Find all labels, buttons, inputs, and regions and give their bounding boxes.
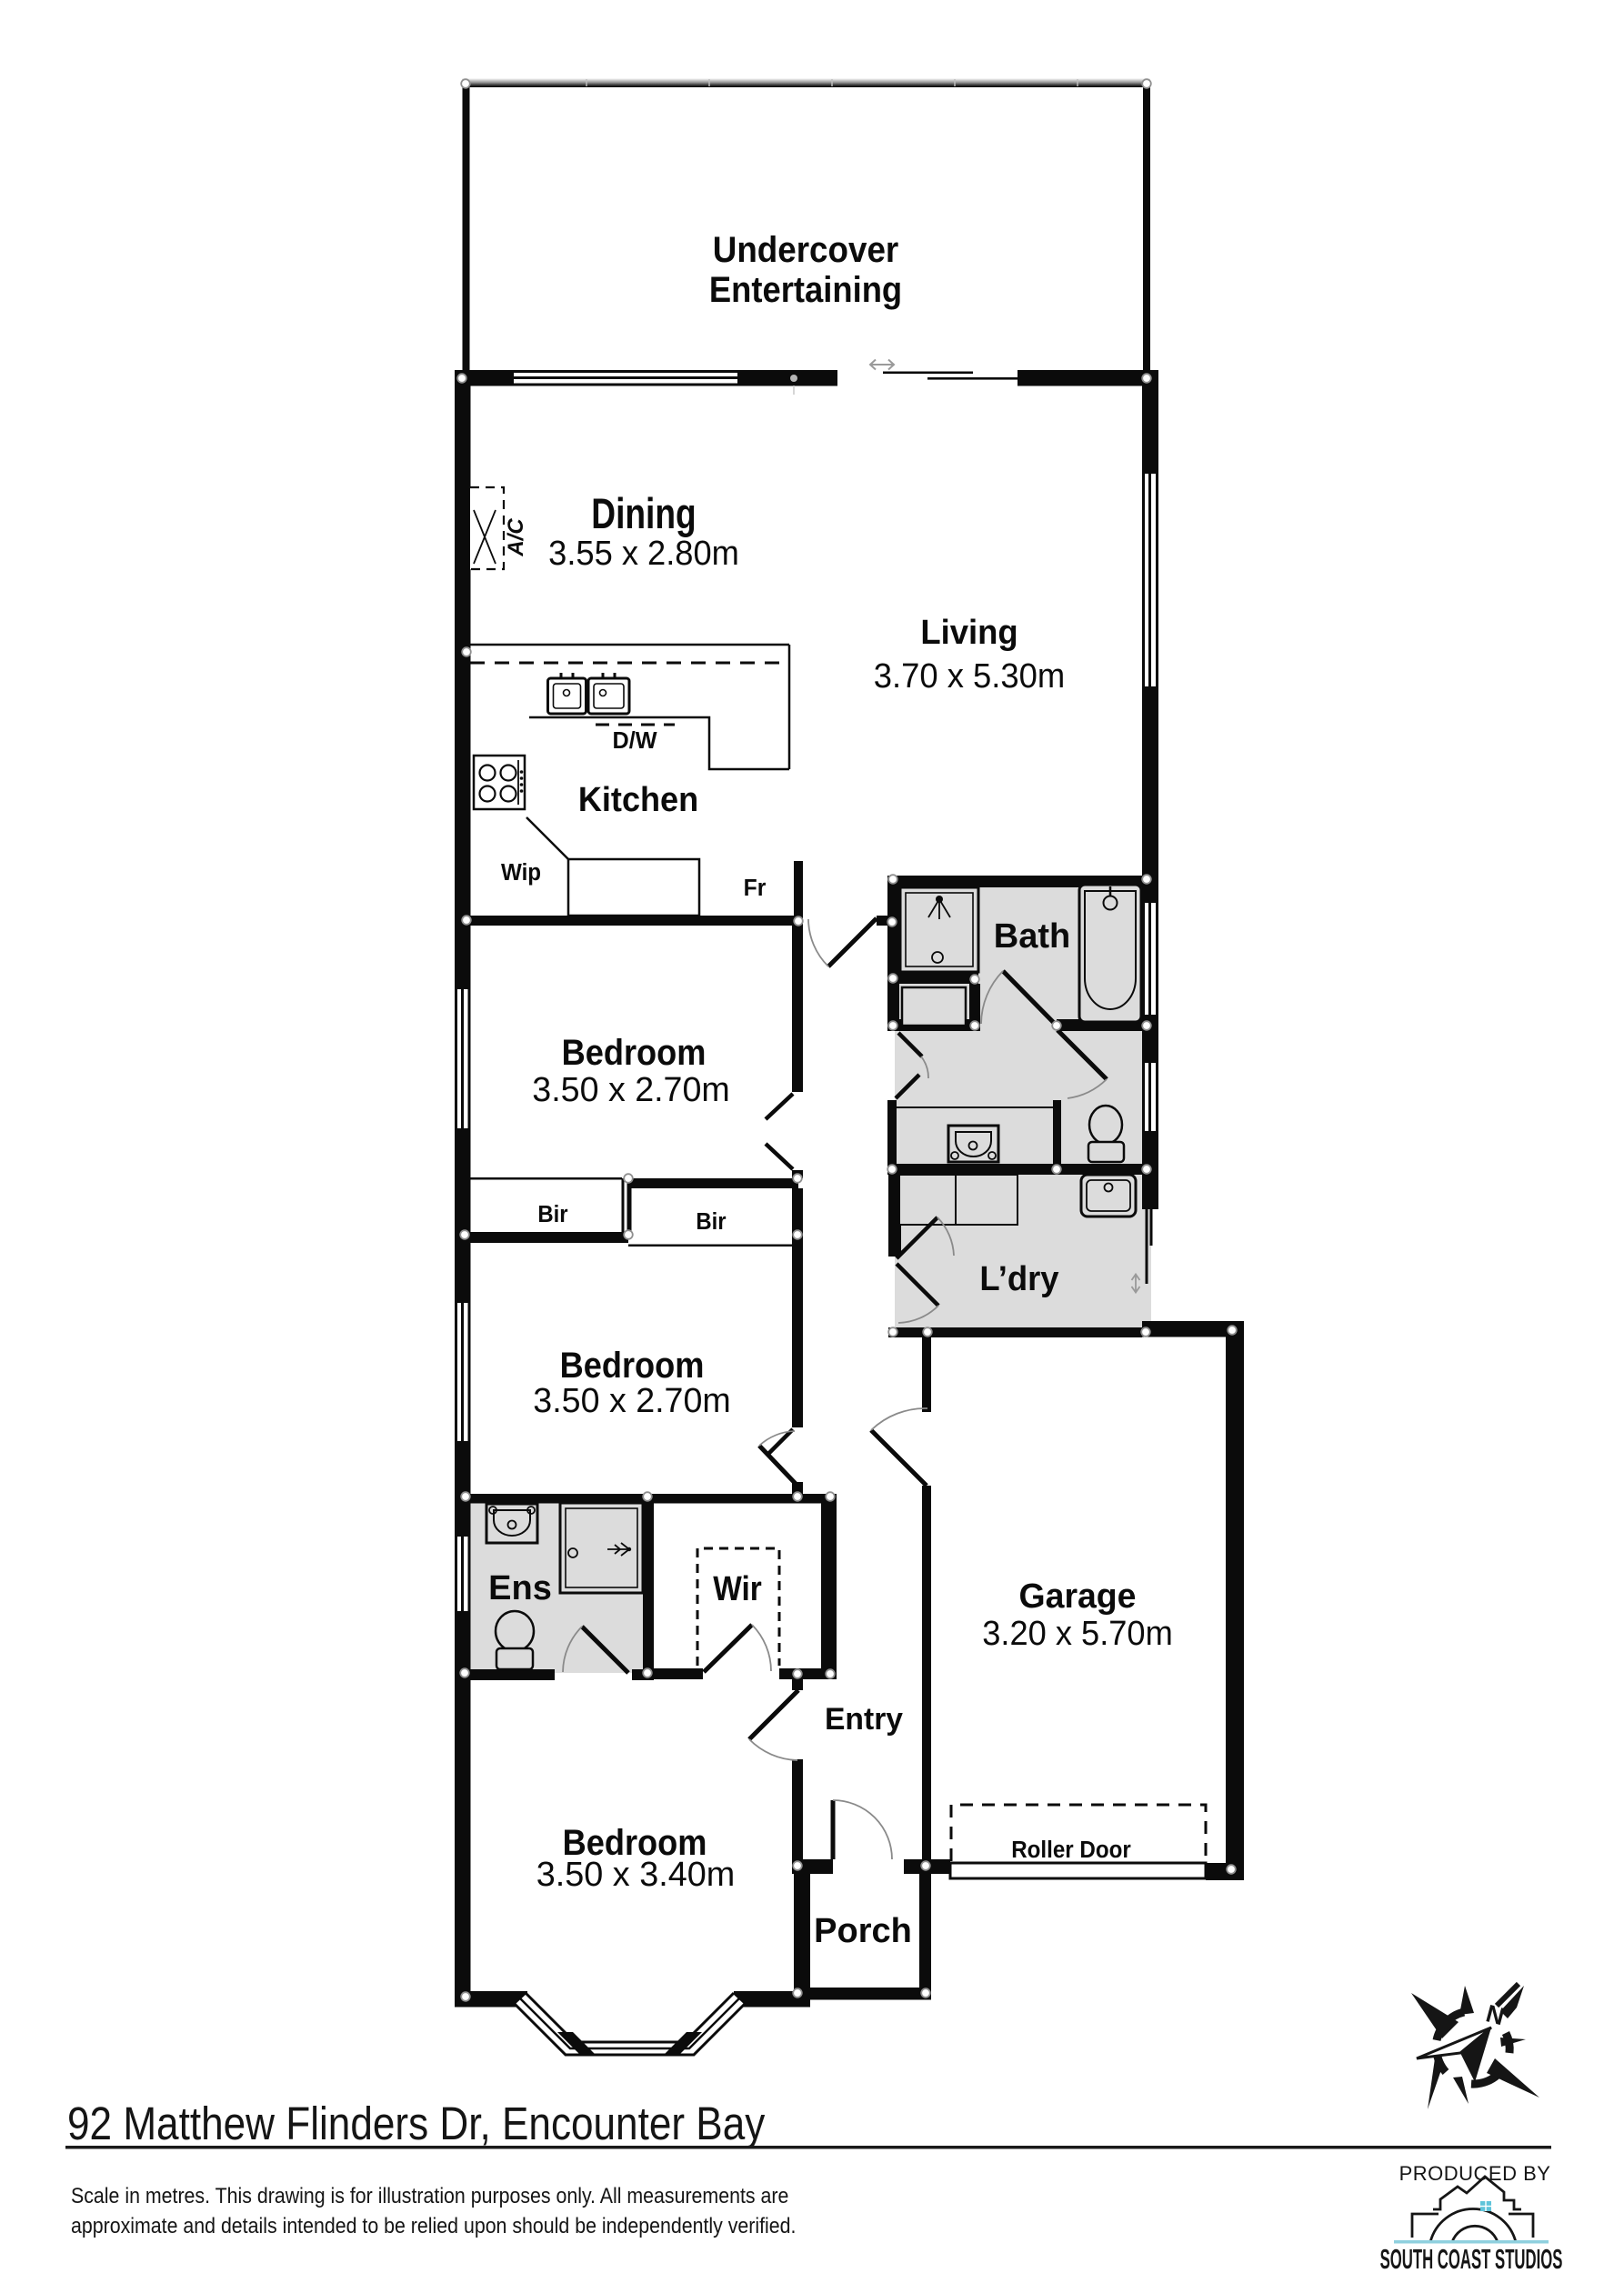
svg-text:Bedroom: Bedroom [560,1345,705,1386]
svg-text:Bedroom: Bedroom [562,1032,707,1073]
svg-text:92 Matthew Flinders Dr, Encoun: 92 Matthew Flinders Dr, Encounter Bay [67,2098,765,2150]
svg-text:Living: Living [920,612,1018,651]
svg-text:L’dry: L’dry [979,1258,1058,1297]
svg-text:N: N [1483,1999,1508,2030]
svg-text:3.50 x 2.70m: 3.50 x 2.70m [532,1071,729,1109]
svg-text:3.70 x 5.30m: 3.70 x 5.30m [874,656,1065,695]
svg-text:3.55 x 2.80m: 3.55 x 2.80m [548,533,739,572]
svg-text:SOUTH COAST STUDIOS: SOUTH COAST STUDIOS [1380,2244,1563,2273]
svg-text:Bir: Bir [537,1201,567,1227]
svg-text:Wip: Wip [501,859,541,886]
svg-text:Kitchen: Kitchen [578,779,698,818]
svg-text:Scale in metres. This drawing: Scale in metres. This drawing is for ill… [71,2183,788,2208]
svg-text:Roller Door: Roller Door [1011,1837,1131,1863]
svg-text:D/W: D/W [612,728,657,754]
svg-text:Fr: Fr [744,875,767,901]
svg-text:approximate and details intend: approximate and details intended to be r… [71,2213,796,2238]
svg-text:Entertaining: Entertaining [709,269,902,310]
svg-text:Porch: Porch [814,1912,912,1950]
svg-text:PRODUCED BY: PRODUCED BY [1399,2162,1551,2185]
svg-text:3.50 x 2.70m: 3.50 x 2.70m [533,1382,730,1420]
svg-text:3.20 x 5.70m: 3.20 x 5.70m [982,1613,1173,1652]
svg-text:Ens: Ens [488,1569,552,1607]
svg-text:Bir: Bir [696,1208,726,1235]
svg-text:Undercover: Undercover [713,230,899,271]
svg-text:Bath: Bath [994,917,1070,956]
svg-text:Entry: Entry [825,1702,903,1737]
svg-text:Wir: Wir [713,1569,762,1607]
svg-text:A/C: A/C [504,518,528,557]
svg-text:3.50 x 3.40m: 3.50 x 3.40m [536,1856,736,1894]
svg-text:Dining: Dining [591,490,696,537]
svg-text:Garage: Garage [1019,1577,1137,1615]
